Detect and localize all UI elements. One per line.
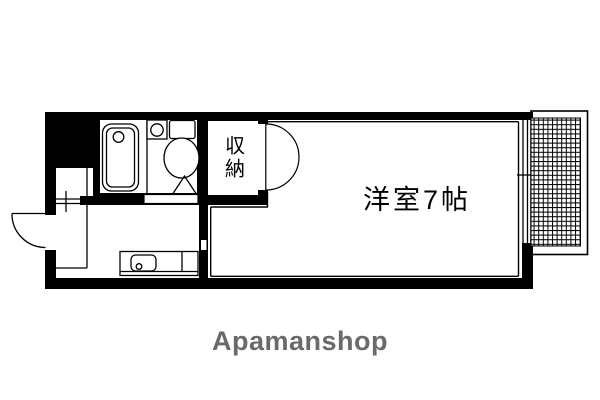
entrance-door-swing (12, 214, 46, 248)
balcony (531, 111, 588, 255)
genkan-outline (56, 168, 87, 268)
closet-double-door-swing (266, 124, 299, 190)
floorplan-image: 収納 洋室7帖 Apamanshop (0, 0, 600, 400)
kitchen-wall-opening (201, 240, 207, 250)
closet-label: 収納 (208, 121, 258, 195)
room-label: 洋室7帖 (317, 185, 517, 215)
wall-entry-block (45, 112, 93, 168)
toilet-icon (164, 121, 199, 179)
wall-bottom (45, 278, 533, 289)
closet-door-opening (258, 124, 268, 190)
brand-logo: Apamanshop (0, 327, 600, 357)
kitchen-sink-icon (131, 255, 156, 271)
bathroom-sink-icon (147, 120, 167, 139)
balcony-hatch (531, 118, 581, 246)
bathtub-icon (103, 124, 139, 191)
wall-left-lower (45, 250, 56, 289)
bathroom-threshold (144, 195, 198, 204)
